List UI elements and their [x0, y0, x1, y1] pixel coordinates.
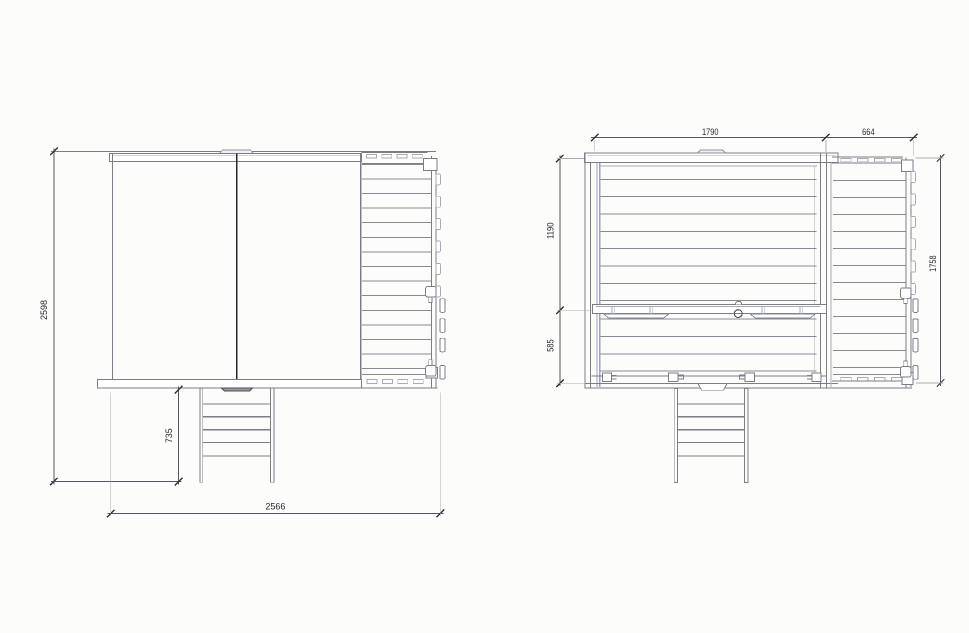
svg-text:735: 735: [164, 428, 174, 443]
svg-text:2566: 2566: [265, 502, 285, 512]
svg-text:585: 585: [545, 339, 555, 352]
svg-text:1190: 1190: [545, 222, 555, 239]
svg-text:2598: 2598: [39, 300, 49, 320]
svg-text:1758: 1758: [928, 255, 938, 272]
svg-text:664: 664: [862, 127, 875, 137]
svg-text:1790: 1790: [702, 127, 719, 137]
